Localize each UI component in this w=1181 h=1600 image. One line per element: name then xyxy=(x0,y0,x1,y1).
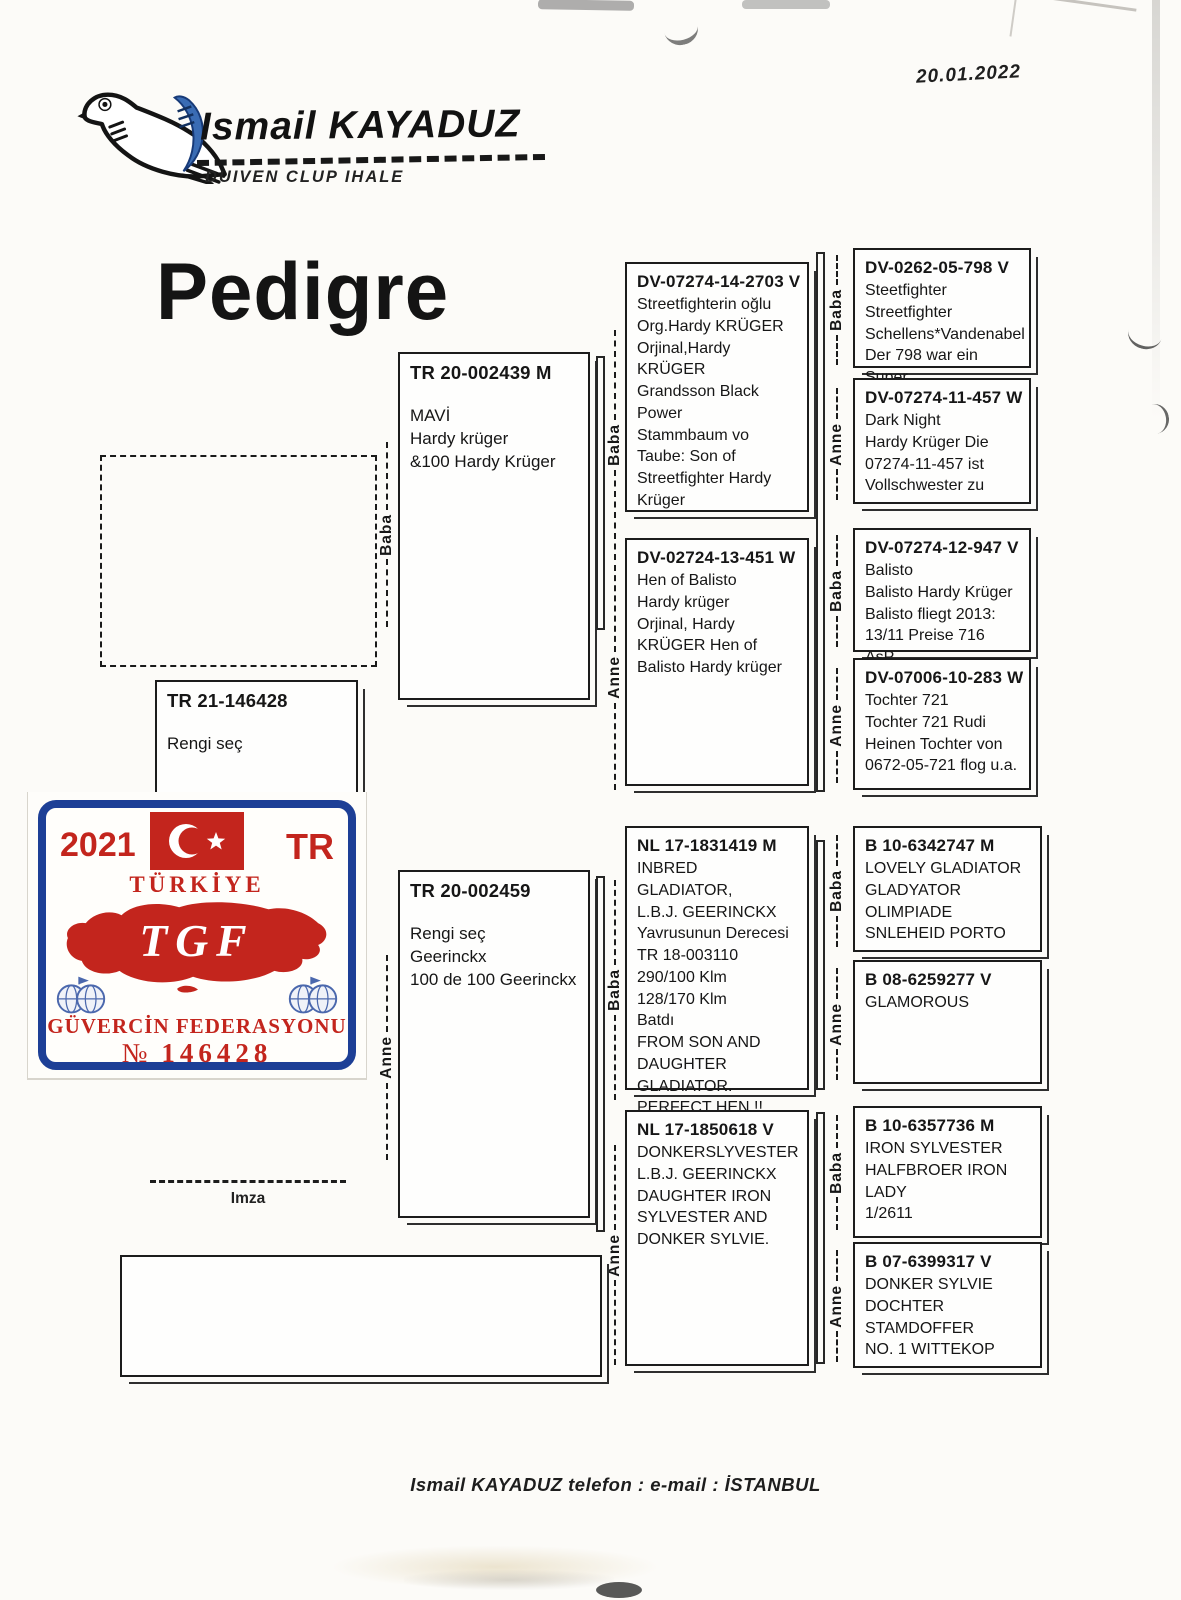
pedigree-box-mm: NL 17-1850618 V DONKERSLYVESTER L.B.J. G… xyxy=(625,1110,809,1366)
connector-bracket xyxy=(596,356,605,630)
pedigree-box-fff: DV-0262-05-798 V Steetfighter Streetfigh… xyxy=(853,248,1031,368)
ring-number: DV-02724-13-451 W xyxy=(637,548,797,568)
ring-number: B 08-6259277 V xyxy=(865,970,1030,990)
dash-line xyxy=(386,1083,388,1160)
ring-number: B 10-6357736 M xyxy=(865,1116,1030,1136)
pedigree-box-subject: TR 21-146428 Rengi seç xyxy=(155,680,358,798)
relation-label-text: Baba xyxy=(828,566,846,616)
connector-bracket xyxy=(816,252,825,792)
relation-label-father: Baba xyxy=(828,1115,845,1230)
footer-contact-line: Ismail KAYADUZ telefon : e-mail : İSTANB… xyxy=(0,1474,1181,1496)
signature-line xyxy=(150,1180,346,1183)
ring-number: TR 20-002439 M xyxy=(410,362,578,384)
pedigree-box-fmm: DV-07006-10-283 W Tochter 721 Tochter 72… xyxy=(853,658,1031,790)
scan-artifact xyxy=(596,1582,642,1598)
relation-label-father: Baba xyxy=(378,442,395,627)
relation-label-text: Anne xyxy=(606,652,624,703)
scan-artifact xyxy=(742,0,830,9)
scan-artifact xyxy=(661,10,701,48)
ring-number: DV-07274-14-2703 V xyxy=(637,272,797,292)
bird-notes: Dark Night Hardy Krüger Die 07274-11-457… xyxy=(865,410,1019,497)
dash-line xyxy=(836,1331,838,1362)
dash-line xyxy=(836,255,838,285)
dash-line xyxy=(386,559,388,627)
sticker-org-abbr: TGF xyxy=(139,915,254,966)
ring-number: DV-07274-12-947 V xyxy=(865,538,1019,558)
dash-line xyxy=(836,968,838,999)
scan-artifact xyxy=(1125,316,1166,353)
dash-line xyxy=(836,616,838,647)
pedigree-box-father: TR 20-002439 M MAVİ Hardy krüger &100 Ha… xyxy=(398,352,590,700)
dash-line xyxy=(836,668,838,700)
relation-label-text: Anne xyxy=(828,419,846,470)
relation-label-mother: Anne xyxy=(828,388,845,500)
dash-line xyxy=(836,1250,838,1281)
ring-number: DV-07274-11-457 W xyxy=(865,388,1019,408)
notes-box xyxy=(120,1255,602,1377)
connector-bracket xyxy=(816,1112,825,1364)
pedigree-box-mother: TR 20-002459 Rengi seç Geerinckx 100 de … xyxy=(398,870,590,1218)
connector-bracket xyxy=(816,840,825,1090)
dash-line xyxy=(836,1049,838,1080)
sticker-number: 146428 xyxy=(161,1038,272,1068)
sticker-frame: 2021 TR TÜRKİYE TGF xyxy=(38,800,356,1070)
relation-label-text: Baba xyxy=(378,510,396,560)
page-title: Pedigre xyxy=(156,244,449,339)
scan-artifact xyxy=(1138,402,1172,437)
bird-notes: Steetfighter Streetfighter Schellens*Van… xyxy=(865,280,1019,389)
brand-name: Ismail KAYADUZ xyxy=(200,102,521,149)
relation-label-text: Baba xyxy=(606,420,624,470)
dash-line xyxy=(614,565,616,652)
globe-emblem-icon xyxy=(284,976,342,1018)
relation-label-mother: Anne xyxy=(828,968,845,1080)
dash-line xyxy=(614,470,616,560)
pedigree-box-fmf: DV-07274-12-947 V Balisto Balisto Hardy … xyxy=(853,528,1031,652)
dash-line xyxy=(836,469,838,500)
relation-label-father: Baba xyxy=(828,535,845,647)
document-date: 20.01.2022 xyxy=(915,61,1021,88)
relation-label-mother: Anne xyxy=(606,1145,623,1365)
dash-line xyxy=(836,535,838,566)
bird-notes: DONKERSLYVESTER L.B.J. GEERINCKX DAUGHTE… xyxy=(637,1142,797,1251)
connector-bracket xyxy=(596,876,605,1232)
scan-artifact xyxy=(330,1545,660,1589)
brand-subtitle: DUIVEN CLUP IHALE xyxy=(205,168,404,187)
pedigree-box-ff: DV-07274-14-2703 V Streetfighterin oğlu … xyxy=(625,262,809,512)
dash-line xyxy=(614,1280,616,1365)
sticker-country-name: TÜRKİYE xyxy=(46,872,348,898)
brand-underline xyxy=(197,154,545,166)
bird-notes: Rengi seç Geerinckx 100 de 100 Geerinckx xyxy=(410,922,578,991)
relation-label-text: Baba xyxy=(828,866,846,916)
bird-notes: Balisto Balisto Hardy Krüger Balisto fli… xyxy=(865,560,1019,669)
ring-number: B 10-6342747 M xyxy=(865,836,1030,856)
relation-label-mother: Anne xyxy=(828,1250,845,1362)
sticker-country-code: TR xyxy=(286,826,334,868)
relation-label-text: Baba xyxy=(828,1148,846,1198)
bird-notes: Tochter 721 Tochter 721 Rudi Heinen Toch… xyxy=(865,690,1019,777)
ring-number: DV-0262-05-798 V xyxy=(865,258,1019,278)
dash-line xyxy=(386,955,388,1032)
bird-notes: GLAMOROUS xyxy=(865,992,1030,1014)
dash-line xyxy=(836,388,838,419)
relation-label-text: Anne xyxy=(828,1281,846,1332)
federation-sticker: 2021 TR TÜRKİYE TGF xyxy=(28,792,366,1078)
bird-notes: LOVELY GLADIATOR GLADYATOR OLIMPIADE SNL… xyxy=(865,858,1030,945)
bird-notes: INBRED GLADIATOR, L.B.J. GEERINCKX Yavru… xyxy=(637,858,797,1119)
dash-line xyxy=(836,835,838,866)
pedigree-box-mff: B 10-6342747 M LOVELY GLADIATOR GLADYATO… xyxy=(853,826,1042,952)
dash-line xyxy=(836,1115,838,1148)
sticker-org-name: GÜVERCİN FEDERASYONU xyxy=(46,1014,348,1039)
ring-number: TR 20-002459 xyxy=(410,880,578,902)
pedigree-box-mfm: B 08-6259277 V GLAMOROUS xyxy=(853,960,1042,1084)
scan-artifact xyxy=(404,1570,614,1590)
dash-line xyxy=(614,1015,616,1100)
pedigree-box-mmm: B 07-6399317 V DONKER SYLVIE DOCHTER STA… xyxy=(853,1242,1042,1368)
relation-label-text: Baba xyxy=(828,285,846,335)
relation-label-mother: Anne xyxy=(828,668,845,783)
numero-sign: № xyxy=(122,1038,148,1068)
pedigree-box-mmf: B 10-6357736 M IRON SYLVESTER HALFBROER … xyxy=(853,1106,1042,1238)
scan-artifact xyxy=(538,0,634,11)
dash-line xyxy=(614,703,616,790)
dash-line xyxy=(614,330,616,420)
bird-notes: IRON SYLVESTER HALFBROER IRON LADY 1/261… xyxy=(865,1138,1030,1225)
sticker-year: 2021 xyxy=(60,826,136,865)
relation-label-mother: Anne xyxy=(378,955,395,1160)
relation-label-mother: Anne xyxy=(606,565,623,790)
pedigree-box-ffm: DV-07274-11-457 W Dark Night Hardy Krüge… xyxy=(853,378,1031,504)
ring-number: TR 21-146428 xyxy=(167,690,346,712)
turkish-flag-icon xyxy=(150,812,244,870)
pedigree-box-fm: DV-02724-13-451 W Hen of Balisto Hardy k… xyxy=(625,538,809,786)
ring-number: NL 17-1831419 M xyxy=(637,836,797,856)
bird-notes: Rengi seç xyxy=(167,732,346,755)
relation-label-text: Baba xyxy=(606,965,624,1015)
relation-label-text: Anne xyxy=(606,1230,624,1281)
scan-artifact xyxy=(1009,0,1136,53)
bird-notes: Streetfighterin oğlu Org.Hardy KRÜGER Or… xyxy=(637,294,797,512)
sticker-registration-number: №146428 xyxy=(46,1038,348,1069)
dash-line xyxy=(836,335,838,365)
dash-line xyxy=(836,751,838,783)
relation-label-text: Anne xyxy=(828,700,846,751)
dash-line xyxy=(614,1145,616,1230)
ring-number: DV-07006-10-283 W xyxy=(865,668,1019,688)
dash-line xyxy=(386,442,388,510)
bird-notes: MAVİ Hardy krüger &100 Hardy Krüger xyxy=(410,404,578,473)
relation-label-father: Baba xyxy=(606,880,623,1100)
globe-emblem-icon xyxy=(52,976,110,1018)
photo-placeholder-box xyxy=(100,455,377,667)
ring-number: NL 17-1850618 V xyxy=(637,1120,797,1140)
relation-label-father: Baba xyxy=(828,835,845,947)
scan-artifact xyxy=(1152,0,1160,420)
pedigree-document: Ismail KAYADUZ DUIVEN CLUP IHALE 20.01.2… xyxy=(0,0,1181,1600)
relation-label-father: Baba xyxy=(828,255,845,365)
relation-label-father: Baba xyxy=(606,330,623,560)
dash-line xyxy=(836,916,838,947)
bird-notes: Hen of Balisto Hardy krüger Orjinal, Har… xyxy=(637,570,797,679)
pedigree-box-mf: NL 17-1831419 M INBRED GLADIATOR, L.B.J.… xyxy=(625,826,809,1090)
dash-line xyxy=(836,1197,838,1230)
ring-number: B 07-6399317 V xyxy=(865,1252,1030,1272)
relation-label-text: Anne xyxy=(378,1032,396,1083)
bird-notes: DONKER SYLVIE DOCHTER STAMDOFFER NO. 1 W… xyxy=(865,1274,1030,1361)
relation-label-text: Anne xyxy=(828,999,846,1050)
signature-label: Imza xyxy=(150,1190,346,1208)
dash-line xyxy=(614,880,616,965)
